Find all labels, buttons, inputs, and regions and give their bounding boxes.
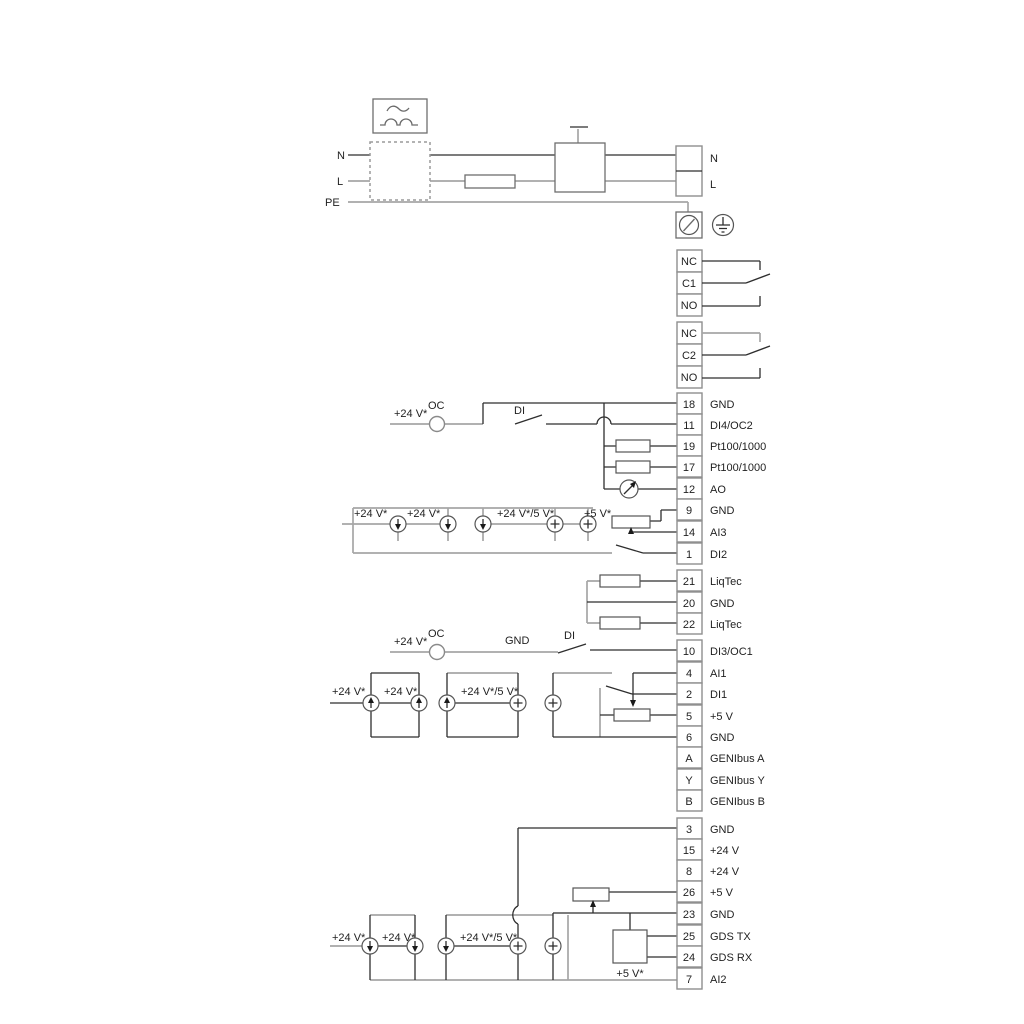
relay-contact-wires — [702, 261, 770, 306]
l-right-label: L — [710, 179, 716, 191]
terminal-row: 22 LiqTec — [677, 613, 742, 634]
n-left-label: N — [337, 150, 345, 162]
terminal-label: DI1 — [710, 689, 727, 701]
terminal-number: 12 — [683, 484, 695, 496]
terminal-row: 23 GND — [677, 903, 735, 924]
v24-label: +24 V* — [332, 932, 366, 944]
terminal-label: AI2 — [710, 974, 727, 986]
terminal-number: 21 — [683, 576, 695, 588]
terminal-number: 23 — [683, 909, 695, 921]
di-label: DI — [514, 405, 525, 417]
wiper-arrow-down-icon — [630, 700, 636, 707]
power-section: N L PE N L — [325, 99, 734, 238]
pt100-sensor-resistor — [616, 440, 650, 452]
terminal-row: 10 DI3/OC1 — [677, 640, 753, 661]
terminal-row: 26 +5 V — [677, 881, 734, 902]
pt100-sensor-resistor — [616, 461, 650, 473]
circuit-ai3: +24 V* +24 V* +24 V*/5 V* +5 V* — [342, 508, 677, 553]
terminal-label: DI3/OC1 — [710, 646, 753, 658]
terminal-row: 25 GDS TX — [677, 925, 751, 946]
terminal-number: C2 — [682, 350, 696, 362]
terminal-row: 19 Pt100/1000 — [677, 435, 766, 456]
current-source-icon — [439, 695, 455, 711]
terminal-label: GENIbus Y — [710, 775, 765, 787]
v24-v5-label: +24 V*/5 V* — [497, 508, 555, 520]
terminal-number: NO — [681, 372, 698, 384]
fuse — [465, 175, 515, 188]
circuit-di4-oc2: +24 V* OC DI — [390, 400, 677, 498]
terminal-label: GND — [710, 399, 735, 411]
terminal-label: GND — [710, 505, 735, 517]
terminal-label: LiqTec — [710, 576, 742, 588]
terminal-label: GENIbus A — [710, 753, 765, 765]
terminal-number: 8 — [686, 866, 692, 878]
terminal-number: 14 — [683, 527, 695, 539]
voltage-source-icon — [545, 938, 561, 954]
terminal-number: 10 — [683, 646, 695, 658]
potentiometer — [614, 709, 650, 721]
v24-label: +24 V* — [407, 508, 441, 520]
terminal-row: 5 +5 V — [677, 705, 734, 726]
terminal-number: 4 — [686, 668, 692, 680]
terminal-number: 1 — [686, 549, 692, 561]
terminal-label: DI2 — [710, 549, 727, 561]
terminal-number: B — [685, 796, 692, 808]
terminal-row: 18 GND — [677, 393, 735, 414]
terminal-label: +5 V — [710, 887, 734, 899]
terminal-number: 19 — [683, 441, 695, 453]
terminal-row: 7 AI2 — [677, 968, 727, 989]
terminal-row: 14 AI3 — [677, 521, 727, 542]
circuit-ai1: +24 V* +24 V* +24 V*/5 V* — [330, 673, 677, 737]
terminal-number: A — [685, 753, 693, 765]
open-collector-icon — [430, 645, 445, 660]
terminal-label: AI1 — [710, 668, 727, 680]
terminal-row: 17 Pt100/1000 — [677, 456, 766, 477]
terminal-row: 9 GND — [677, 499, 735, 520]
terminal-label: AO — [710, 484, 726, 496]
terminal-row: A GENIbus A — [677, 747, 765, 768]
terminal-label: GDS TX — [710, 931, 751, 943]
terminal-row: 6 GND — [677, 726, 735, 747]
mains-filter-icon — [373, 99, 427, 133]
circuit-ai2-gds: +24 V* +24 V* +24 V*/5 V* +5 V* — [330, 828, 677, 980]
relay-2: NC C2 NO — [677, 322, 770, 388]
terminal-number: 7 — [686, 974, 692, 986]
terminal-label: +24 V — [710, 866, 740, 878]
terminal-number: 26 — [683, 887, 695, 899]
terminal-number: 24 — [683, 952, 695, 964]
terminal-number: 15 — [683, 845, 695, 857]
terminal-row: 15 +24 V — [677, 839, 740, 860]
wiring-diagram-page: N L PE N L NC C1 NO NC C2 NO — [0, 0, 1024, 1024]
dashed-device-box — [370, 142, 430, 200]
current-source-icon — [475, 516, 491, 532]
current-source-icon — [440, 516, 456, 532]
terminal-row: 3 GND — [677, 818, 735, 839]
oc-label: OC — [428, 400, 445, 412]
terminal-row: 21 LiqTec — [677, 570, 742, 591]
v24-v5-label: +24 V*/5 V* — [460, 932, 518, 944]
terminal-number: 20 — [683, 598, 695, 610]
terminal-number: 5 — [686, 711, 692, 723]
terminal-row: 1 DI2 — [677, 543, 727, 564]
terminal-label: +24 V — [710, 845, 740, 857]
terminal-label: GND — [710, 598, 735, 610]
terminal-number: Y — [685, 775, 693, 787]
terminal-row: B GENIbus B — [677, 790, 765, 811]
terminal-row: 24 GDS RX — [677, 946, 753, 967]
terminal-label: GENIbus B — [710, 796, 765, 808]
terminal-row: 20 GND — [677, 592, 735, 613]
terminal-number: 17 — [683, 462, 695, 474]
wire — [348, 129, 688, 212]
terminal-number: C1 — [682, 278, 696, 290]
v24-label: +24 V* — [382, 932, 416, 944]
terminal-number: 25 — [683, 931, 695, 943]
voltage-source-icon — [545, 695, 561, 711]
relay-contact-wires — [702, 346, 770, 378]
analog-output-meter-icon — [620, 480, 638, 498]
gds-sensor-box — [613, 930, 647, 963]
l-left-label: L — [337, 176, 343, 188]
terminal-row: 12 AO — [677, 478, 726, 499]
main-switch — [555, 143, 605, 192]
terminal-number: 6 — [686, 732, 692, 744]
terminal-label: DI4/OC2 — [710, 420, 753, 432]
terminal-label: AI3 — [710, 527, 727, 539]
terminal-row: 2 DI1 — [677, 683, 727, 704]
pe-label: PE — [325, 197, 340, 209]
di-label: DI — [564, 630, 575, 642]
wire — [447, 673, 612, 737]
terminal-label: GND — [710, 909, 735, 921]
terminal-row: 4 AI1 — [677, 662, 727, 683]
v5-label: +5 V* — [616, 968, 644, 980]
terminal-label: GND — [710, 824, 735, 836]
terminal-label: Pt100/1000 — [710, 462, 766, 474]
v24-label: +24 V* — [332, 686, 366, 698]
current-source-icon — [390, 516, 406, 532]
v24-v5-label: +24 V*/5 V* — [461, 686, 519, 698]
terminal-row: 11 DI4/OC2 — [677, 414, 753, 435]
liqtec-sensor-resistor — [600, 617, 640, 629]
v5-label: +5 V* — [584, 508, 612, 520]
terminal-number: 2 — [686, 689, 692, 701]
open-collector-icon — [430, 417, 445, 432]
terminal-number: NC — [681, 256, 697, 268]
terminal-number: 3 — [686, 824, 692, 836]
terminal-label: +5 V — [710, 711, 734, 723]
wire — [558, 644, 677, 653]
earth-icon — [713, 215, 734, 236]
terminal-label: GDS RX — [710, 952, 753, 964]
circuit-di3-oc1: +24 V* OC GND DI — [390, 628, 677, 660]
terminal-strip: 18 GND 11 DI4/OC2 19 Pt100/1000 17 Pt100… — [677, 393, 766, 989]
oc-label: OC — [428, 628, 445, 640]
gnd-label: GND — [505, 635, 530, 647]
terminal-label: GND — [710, 732, 735, 744]
n-right-label: N — [710, 153, 718, 165]
v24-label: +24 V* — [354, 508, 388, 520]
terminal-number: 11 — [683, 420, 694, 432]
current-source-icon — [438, 938, 454, 954]
potentiometer — [612, 516, 650, 528]
v24-label: +24 V* — [394, 408, 428, 420]
terminal-row: Y GENIbus Y — [677, 769, 765, 790]
relay-contact-wire — [702, 333, 760, 342]
terminal-number: 9 — [686, 505, 692, 517]
terminal-number: NC — [681, 328, 697, 340]
wiring-diagram: N L PE N L NC C1 NO NC C2 NO — [0, 0, 1024, 1024]
wire — [330, 673, 677, 737]
liqtec-sensor-resistor — [600, 575, 640, 587]
terminal-number: 22 — [683, 619, 695, 631]
terminal-number: 18 — [683, 399, 695, 411]
terminal-number: NO — [681, 300, 698, 312]
terminal-label: Pt100/1000 — [710, 441, 766, 453]
potentiometer — [573, 888, 609, 901]
v24-label: +24 V* — [394, 636, 428, 648]
v24-label: +24 V* — [384, 686, 418, 698]
terminal-label: LiqTec — [710, 619, 742, 631]
current-source-icon — [363, 695, 379, 711]
circuit-liqtec — [587, 575, 677, 629]
relay-1: NC C1 NO — [677, 250, 770, 316]
terminal-row: 8 +24 V — [677, 860, 740, 881]
